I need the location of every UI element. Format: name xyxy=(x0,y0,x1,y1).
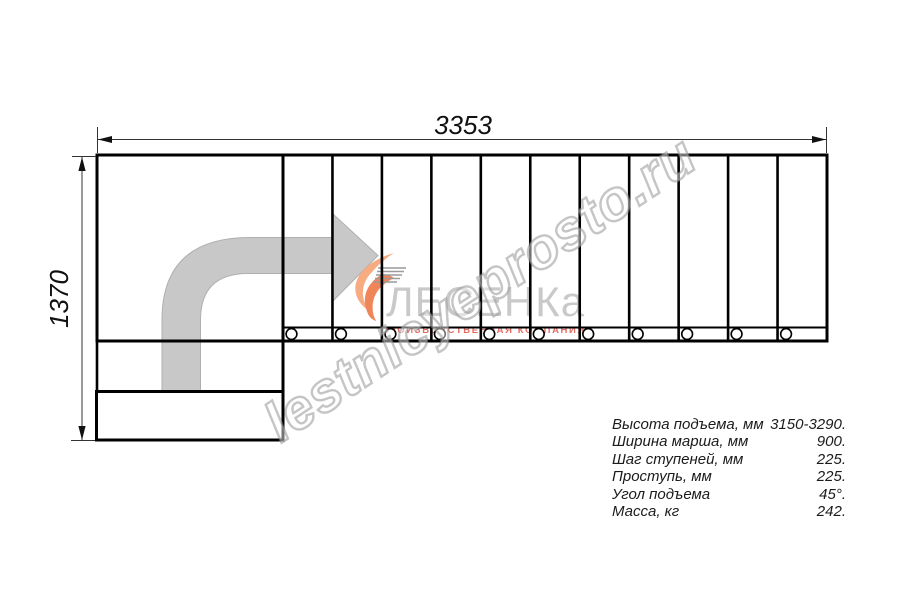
spec-row: Масса, кг 242. xyxy=(612,503,846,520)
baluster-circle xyxy=(385,329,396,340)
baluster-circle xyxy=(731,329,742,340)
dim-height-value: 1370 xyxy=(44,270,74,328)
arrowhead-down xyxy=(78,426,85,440)
spec-value: 225. xyxy=(817,451,846,468)
spec-value: 45°. xyxy=(819,486,846,503)
baluster-circle xyxy=(533,329,544,340)
baluster-circle xyxy=(682,329,693,340)
spec-label: Проступь, мм xyxy=(612,468,712,485)
baluster-circle xyxy=(583,329,594,340)
structure-static xyxy=(97,155,828,440)
specs-table: Высота подъема, мм 3150-3290. Ширина мар… xyxy=(612,416,846,520)
spec-label: Ширина марша, мм xyxy=(612,433,748,450)
spec-value: 225. xyxy=(817,468,846,485)
spec-value: 900. xyxy=(817,433,846,450)
baluster-circles xyxy=(286,329,791,340)
tread-lines xyxy=(332,157,777,340)
spec-label: Масса, кг xyxy=(612,503,679,520)
baluster-circle xyxy=(286,329,297,340)
baluster-circle xyxy=(781,329,792,340)
spec-label: Угол подъема xyxy=(612,486,710,503)
dimension-lines xyxy=(71,127,827,441)
spec-row: Угол подъема 45°. xyxy=(612,486,846,503)
baluster-circle xyxy=(434,329,445,340)
baluster-circle xyxy=(632,329,643,340)
arrowhead-up xyxy=(78,157,85,171)
baluster-circle xyxy=(484,329,495,340)
spec-row: Проступь, мм 225. xyxy=(612,468,846,485)
spec-value: 242. xyxy=(817,503,846,520)
arrowhead-right xyxy=(812,136,826,143)
dimension-arrowheads xyxy=(78,136,826,440)
flight-outline xyxy=(97,155,827,341)
spec-row: Ширина марша, мм 900. xyxy=(612,433,846,450)
spec-label: Высота подъема, мм xyxy=(612,416,764,433)
lower-step-1 xyxy=(97,341,283,392)
lower-step-2 xyxy=(97,392,284,441)
spec-row: Шаг ступеней, мм 225. xyxy=(612,451,846,468)
staircase-drawing-canvas: ЛЕСЕНКа производственная компания xyxy=(0,0,900,600)
baluster-circle xyxy=(336,329,347,340)
arrowhead-left xyxy=(98,136,112,143)
spec-row: Высота подъема, мм 3150-3290. xyxy=(612,416,846,433)
spec-label: Шаг ступеней, мм xyxy=(612,451,743,468)
dim-width-value: 3353 xyxy=(434,110,492,140)
spec-value: 3150-3290. xyxy=(770,416,846,433)
